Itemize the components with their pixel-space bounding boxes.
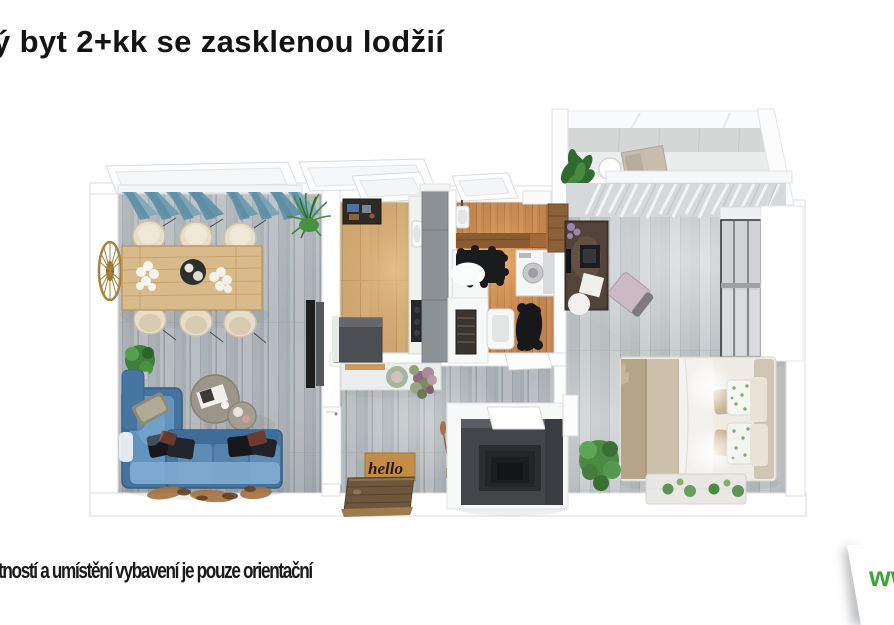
- svg-text:hello: hello: [368, 459, 403, 478]
- svg-text:www: www: [868, 561, 894, 592]
- svg-text:ý byt 2+kk se zasklenou lodžií: ý byt 2+kk se zasklenou lodžií: [0, 24, 445, 59]
- svg-text:tností a umístění vybavení je: tností a umístění vybavení je pouze orie…: [0, 559, 314, 584]
